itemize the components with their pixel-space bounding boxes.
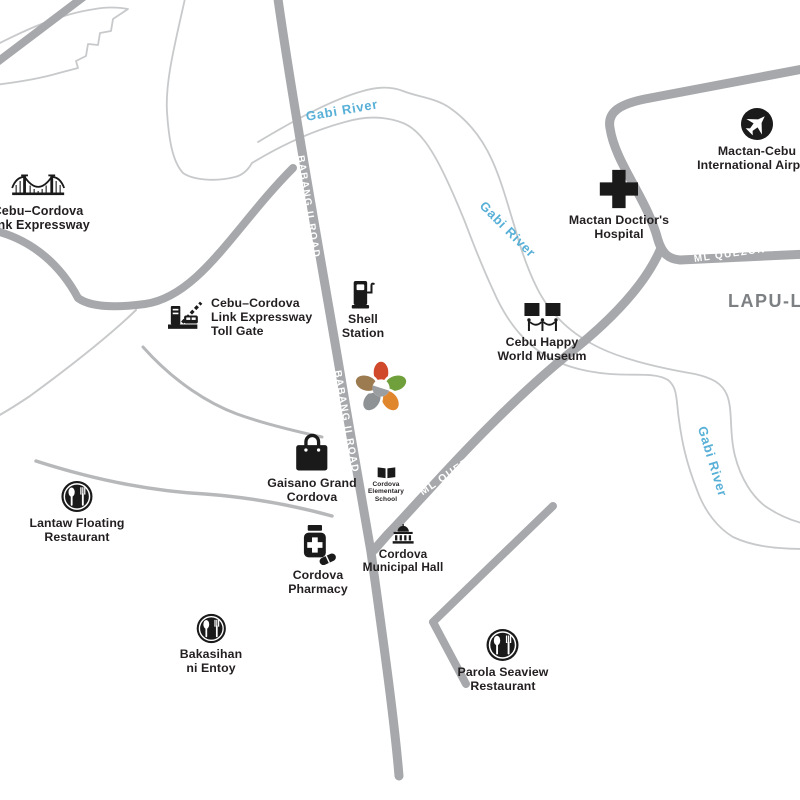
landmark-shell-station: Shell Station: [342, 278, 384, 341]
landmark-label-museum: Cebu Happy World Museum: [497, 336, 586, 364]
road-minor-central: [143, 347, 322, 437]
gas-pump-icon: [351, 278, 376, 309]
landmark-label-lantaw: Lantaw Floating Restaurant: [29, 517, 124, 545]
city-label-lapu-lapu: LAPU-LAPU: [728, 291, 800, 312]
boundary-line: [167, 0, 252, 180]
landmark-label-hospital: Mactan Doctior's Hospital: [569, 214, 669, 242]
museum-icon: [523, 303, 561, 332]
landmark-label-parola: Parola Seaview Restaurant: [458, 666, 549, 694]
landmark-cordova-elementary-school: Cordova Elementary School: [368, 466, 404, 503]
landmark-cebu-happy-world-museum: Cebu Happy World Museum: [497, 303, 586, 364]
landmark-cordova-pharmacy: Cordova Pharmacy: [288, 525, 348, 597]
landmark-label-school: Cordova Elementary School: [368, 481, 404, 503]
location-logo-icon: [351, 358, 411, 418]
landmark-label-gaisano: Gaisano Grand Cordova: [267, 477, 356, 505]
government-building-icon: [391, 524, 416, 544]
landmark-label-airport: Mactan-Cebu International Airport: [687, 145, 800, 173]
landmark-label-bakasihan: Bakasihan ni Entoy: [180, 648, 242, 676]
medicine-bottle-icon: [298, 525, 338, 565]
landmark-label-toll-gate: Cebu–Cordova Link Expressway Toll Gate: [211, 297, 312, 338]
open-book-icon: [376, 466, 395, 479]
landmark-label-municipal-hall: Cordova Municipal Hall: [363, 548, 444, 574]
landmark-project-location: [351, 358, 411, 418]
landmark-mactan-doctors-hospital: Mactan Doctior's Hospital: [569, 168, 669, 242]
airplane-icon: [740, 107, 774, 141]
bridge-icon: [11, 172, 65, 200]
coastline-southwest: [0, 310, 136, 418]
landmark-cclex-toll-gate: Cebu–Cordova Link Expressway Toll Gate: [168, 297, 312, 338]
restaurant-icon: [195, 613, 226, 644]
landmark-label-shell: Shell Station: [342, 313, 384, 341]
landmark-cordova-municipal-hall: Cordova Municipal Hall: [363, 524, 444, 574]
landmark-parola-seaview-restaurant: Parola Seaview Restaurant: [458, 628, 549, 694]
landmark-label-pharmacy: Cordova Pharmacy: [288, 569, 348, 597]
landmark-cclex-bridge: Cebu–Cordova Link Expressway: [0, 172, 90, 232]
landmark-mactan-cebu-airport: Mactan-Cebu International Airport: [687, 107, 800, 173]
restaurant-icon: [61, 480, 94, 513]
landmark-gaisano-grand-cordova: Gaisano Grand Cordova: [267, 431, 356, 505]
road-ml-quezon-highway: [374, 248, 661, 550]
shopping-bag-icon: [293, 431, 330, 473]
vicinity-map: BABANG II ROAD BABANG II ROAD ML QUEZON …: [0, 0, 800, 800]
landmark-label-cclex: Cebu–Cordova Link Expressway: [0, 204, 90, 232]
toll-gate-icon: [168, 297, 204, 333]
landmark-bakasihan-ni-entoy: Bakasihan ni Entoy: [180, 613, 242, 676]
road-top-left-corner: [0, 0, 90, 66]
restaurant-icon: [486, 628, 520, 662]
landmark-lantaw-floating-restaurant: Lantaw Floating Restaurant: [29, 480, 124, 545]
medical-cross-icon: [598, 168, 640, 210]
